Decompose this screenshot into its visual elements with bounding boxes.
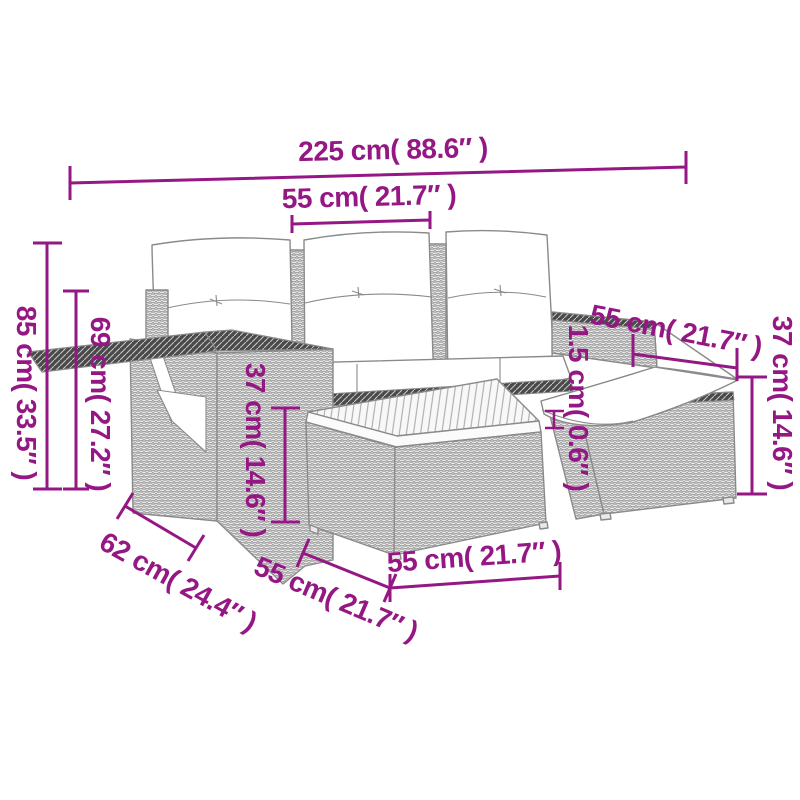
coffee-table — [306, 379, 548, 561]
footstool-foot — [600, 513, 611, 520]
dim-label-armrest-height: 69 cm( 27.2″ ) — [86, 317, 114, 492]
dim-line-footstool-height — [737, 377, 767, 494]
dim-label-cushion-thickness: 1.5 cm( 0.6″ ) — [564, 325, 592, 492]
dim-label-total-height: 85 cm( 33.5″ ) — [12, 306, 40, 481]
dim-line-seat-width — [292, 211, 430, 233]
dim-label-footstool-height: 37 cm( 14.6″ ) — [768, 316, 796, 491]
footstool-foot — [723, 497, 734, 504]
dim-label-seat-width: 55 cm( 21.7″ ) — [281, 181, 456, 214]
table-foot — [539, 522, 548, 529]
left-armrest — [28, 330, 333, 584]
furniture-illustration — [0, 0, 800, 800]
product-dimension-diagram: 225 cm( 88.6″ ) 55 cm( 21.7″ ) 85 cm( 33… — [0, 0, 800, 800]
dim-label-seat-height: 37 cm( 14.6″ ) — [241, 363, 269, 538]
dim-label-overall-width: 225 cm( 88.6″ ) — [298, 134, 488, 166]
